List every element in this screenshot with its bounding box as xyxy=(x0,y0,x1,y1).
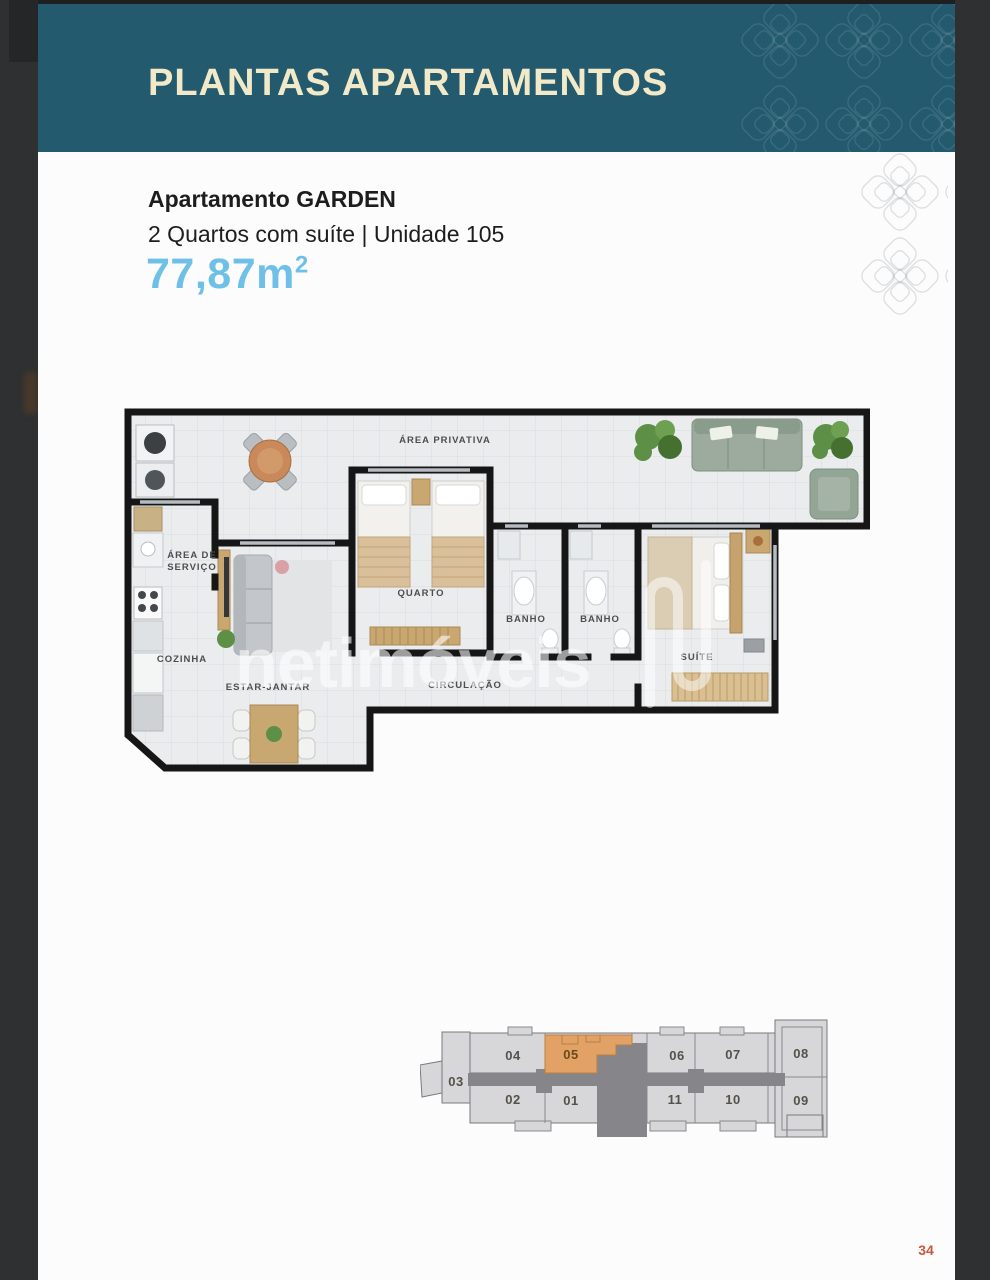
building-key-plan: 03 04 05 06 07 08 02 01 11 10 09 xyxy=(420,1015,870,1150)
page-title: PLANTAS APARTAMENTOS xyxy=(148,62,668,105)
right-dark-margin xyxy=(955,0,990,1280)
room-label-servico: SERVIÇO xyxy=(167,562,217,573)
room-label-area-privativa: ÁREA PRIVATIVA xyxy=(399,435,491,446)
apartment-name: Apartamento GARDEN xyxy=(148,186,396,213)
garden-armchair xyxy=(810,469,858,519)
flower-pattern-icon xyxy=(858,150,948,316)
tv-unit xyxy=(218,550,230,630)
side-table xyxy=(275,560,289,574)
nightstand xyxy=(412,479,430,505)
washer-dryer xyxy=(136,425,174,497)
indoor-plant xyxy=(217,630,235,648)
twin-bed xyxy=(358,481,410,587)
document-page: PLANTAS APARTAMENTOS Apartamento GARDEN … xyxy=(38,4,955,1280)
unit-label-09: 09 xyxy=(793,1093,808,1108)
left-margin-dark-block xyxy=(9,0,38,62)
unit-label-04: 04 xyxy=(505,1048,521,1063)
page-number: 34 xyxy=(906,1242,946,1258)
area-superscript: 2 xyxy=(295,252,309,279)
apartment-area: 77,87m2 xyxy=(146,250,309,299)
unit-label-11: 11 xyxy=(668,1092,683,1107)
unit-label-02: 02 xyxy=(505,1092,520,1107)
left-margin-artifact xyxy=(24,372,38,414)
kitchen-counter xyxy=(133,507,163,731)
unit-label-06: 06 xyxy=(669,1048,684,1063)
floor-plan-image: ÁREA PRIVATIVA ÁREA DE SERVIÇO COZINHA E… xyxy=(120,405,870,797)
twin-bed xyxy=(432,481,484,587)
room-label-area-de: ÁREA DE xyxy=(167,550,216,561)
left-dark-margin xyxy=(0,0,38,1280)
unit-label-08: 08 xyxy=(793,1046,808,1061)
area-value: 77,87m xyxy=(146,250,295,298)
unit-label-03: 03 xyxy=(448,1074,463,1089)
suite-console xyxy=(744,639,764,652)
unit-label-10: 10 xyxy=(725,1092,740,1107)
nightstand xyxy=(746,529,770,553)
room-label-cozinha: COZINHA xyxy=(157,654,207,665)
apartment-specs: 2 Quartos com suíte | Unidade 105 xyxy=(148,221,504,248)
flower-pattern-icon xyxy=(738,4,955,152)
room-label-quarto: QUARTO xyxy=(398,588,445,599)
watermark-text: netimóveis xyxy=(235,624,591,702)
garden-plant xyxy=(812,421,853,459)
unit-label-01: 01 xyxy=(563,1093,578,1108)
unit-label-05: 05 xyxy=(563,1047,578,1062)
garden-sofa xyxy=(692,419,802,471)
unit-label-07: 07 xyxy=(725,1047,740,1062)
